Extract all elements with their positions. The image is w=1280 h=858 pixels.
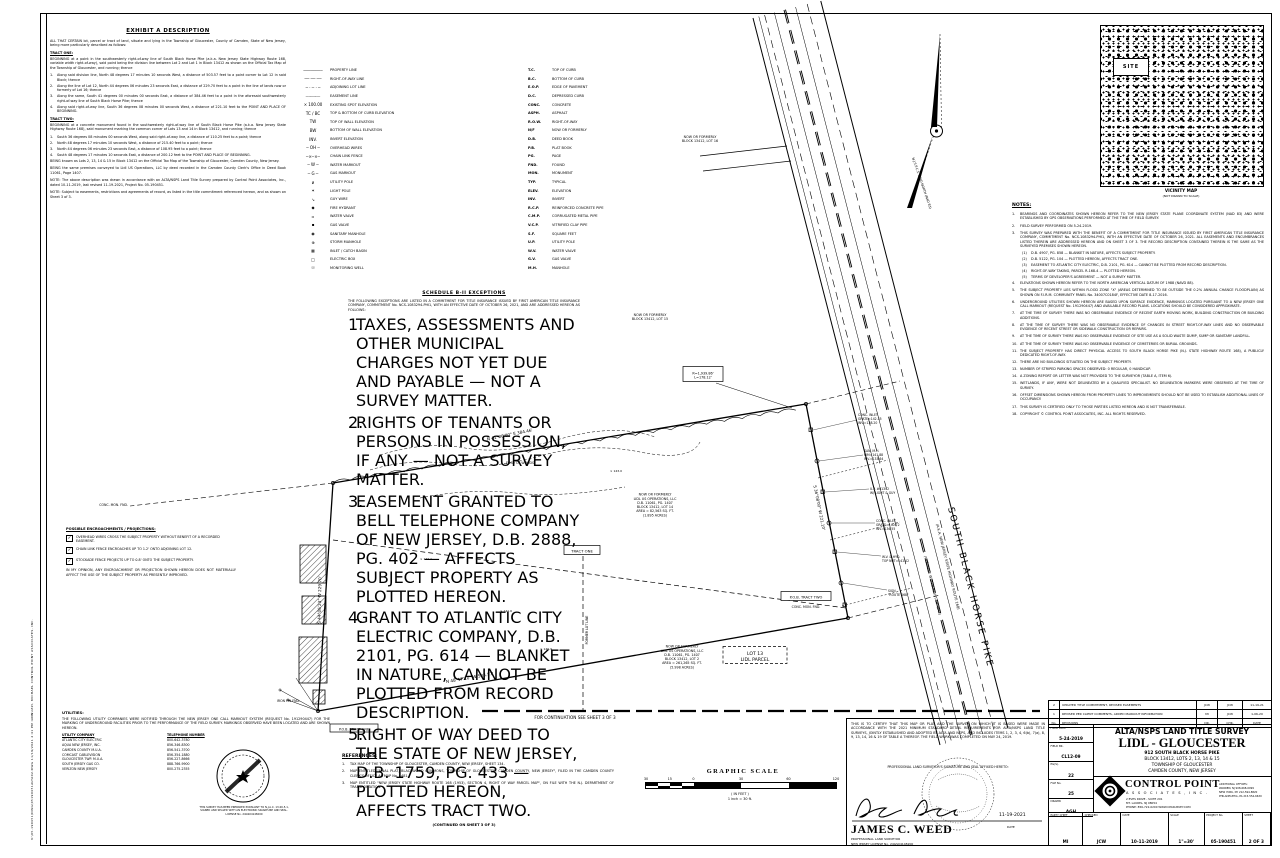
- svg-text:P.O.B. TRACT TWO: P.O.B. TRACT TWO: [790, 596, 823, 600]
- abbreviation: W.V.: [528, 249, 552, 253]
- abbreviation-row: D.C.DEPRESSED CURB: [528, 92, 696, 101]
- abbreviation-row: PG.PAGE: [528, 152, 696, 161]
- abbreviation: P.B.: [528, 146, 552, 150]
- project-address: 912 SOUTH BLACK HORSE PIKE: [1093, 751, 1271, 756]
- abbreviation-row: INV.INVERT: [528, 195, 696, 204]
- abbreviation: TYP.: [528, 180, 552, 184]
- field-label: FIELD DATE: [1051, 726, 1066, 730]
- legend-row: □ELECTRIC BOX: [296, 255, 528, 264]
- exhibit-paragraph: NOTE: Subject to easements, restrictions…: [50, 190, 286, 199]
- abbreviation: B.C.: [528, 77, 552, 81]
- titleblock-bottom-cell: DATE10-11-2019: [1121, 812, 1169, 845]
- signature-date-label: DATE: [1007, 825, 1015, 829]
- abbreviation-row: R.C.P.REINFORCED CONCRETE PIPE: [528, 204, 696, 213]
- legend-label: OVERHEAD WIRES: [330, 146, 362, 150]
- legend-symbol: ─×─×─: [296, 154, 330, 159]
- legend-row: ☉MONITORING WELL: [296, 264, 528, 273]
- exhibit-course: 3.Along the same, South 41 degrees 00 mi…: [50, 94, 286, 103]
- encroachments-title: POSSIBLE ENCROACHMENTS / PROJECTIONS:: [66, 527, 236, 531]
- abbreviation: C.M.P.: [528, 214, 552, 218]
- exhibit-paragraph: BEGINNING at a point in the southwesterl…: [50, 57, 286, 70]
- drawing-label: W.V. & HYD.TOP NUT=141.02: [881, 555, 909, 563]
- abbreviation-meaning: BOTTOM OF CURB: [552, 77, 584, 81]
- note-sub-item: (2)D.B. 5122, PG. 104 — PLOTTED HEREON, …: [1022, 257, 1264, 261]
- abbreviation-meaning: ELEVATION: [552, 189, 571, 193]
- legend-label: GUY WIRE: [330, 197, 348, 201]
- svg-text:N.J.S.P.C.S. GRID NORTH (NAD 8: N.J.S.P.C.S. GRID NORTH (NAD 83): [911, 157, 932, 209]
- firm-subname: A S S O C I A T E S , I N C .: [1126, 791, 1208, 795]
- abbreviation-row: R.O.W.RIGHT-OF-WAY: [528, 118, 696, 127]
- drawing-label: IRON PIN FND.: [277, 699, 300, 703]
- survey-sheet: V:\05-190451\DWG\05190451ALTA02.DWG 11/1…: [0, 0, 1280, 858]
- graphic-scale: GRAPHIC SCALE 301503060120 ( IN FEET ) 1…: [645, 768, 841, 775]
- abbreviation-row: FND.FOUND: [528, 161, 696, 170]
- abbreviation-meaning: PAGE: [552, 154, 561, 158]
- abbreviation: INV.: [528, 197, 552, 201]
- abbreviation-meaning: GAS VALVE: [552, 257, 571, 261]
- scale-inch-note: 1 inch = 30 ft.: [645, 797, 835, 801]
- exhibit-a-body: ALL THAT CERTAIN lot, parcel or tract of…: [50, 39, 286, 199]
- legend-row: ── ── ──RIGHT-OF-WAY LINE: [296, 75, 528, 84]
- drawing-label: NOW OR FORMERLYBLOCK 13412, LOT 15: [632, 313, 668, 321]
- legend-abbreviations: T.C.TOP OF CURBB.C.BOTTOM OF CURBE.O.P.E…: [528, 66, 696, 272]
- note-sub-item: (4)RIGHT-OF-WAY TAKING, PARCEL R-168-4 —…: [1022, 269, 1264, 273]
- legend-label: EASEMENT LINE: [330, 94, 358, 98]
- note-item: 5.THE SUBJECT PROPERTY LIES WITHIN FLOOD…: [1012, 288, 1264, 297]
- legend-label: RIGHT-OF-WAY LINE: [330, 77, 364, 81]
- north-arrow: [907, 34, 943, 208]
- legend-symbol: □: [296, 257, 330, 262]
- abbreviation-row: P.B.PLAT BOOK: [528, 143, 696, 152]
- legend-row: ↘GUY WIRE: [296, 195, 528, 204]
- schedule-b-item: 1.TAXES, ASSESSMENTS AND OTHER MUNICIPAL…: [348, 315, 580, 410]
- svg-text:(1.895 ACRES): (1.895 ACRES): [643, 513, 667, 517]
- abbreviation-meaning: VITRIFIED CLAY PIPE: [552, 223, 587, 227]
- abbreviation-row: V.C.P.VITRIFIED CLAY PIPE: [528, 221, 696, 230]
- notes-title: NOTES:: [1012, 203, 1264, 208]
- reference-item: 1.TAX MAP OF THE TOWNSHIP OF GLOUCESTER,…: [342, 762, 614, 766]
- scale-tick: 0: [692, 777, 694, 781]
- field-value: 22: [1049, 773, 1093, 778]
- abbreviation-row: ASPH.ASPHALT: [528, 109, 696, 118]
- drawing-label: P.O.B. TRACT TWO: [781, 592, 831, 601]
- vicinity-caption-sub: (NOT DRAWN TO SCALE): [1100, 194, 1262, 198]
- exhibit-paragraph: BEGINNING at a concrete monument found i…: [50, 123, 286, 132]
- drawing-label: U.P. #61342W/ LIGHT & GUY: [870, 487, 895, 495]
- scale-tick: 30: [644, 777, 648, 781]
- note-item: 10.AT THE TIME OF SURVEY THERE WAS NO OB…: [1012, 342, 1264, 346]
- revision-row: 1REVISED PER CLIENT COMMENTS, ADDED MARK…: [1049, 710, 1271, 719]
- note-item: 16.OFFSET DIMENSIONS SHOWN HEREON FROM P…: [1012, 393, 1264, 402]
- legend-symbol: ── ── ──: [296, 76, 330, 81]
- field-value: 5-24-2019: [1049, 736, 1093, 741]
- abbreviation-row: CONC.CONCRETE: [528, 100, 696, 109]
- svg-text:"ROUTE 168": "ROUTE 168": [888, 593, 909, 597]
- legend-row: ─ · ─ · ─ADJOINING LOT LINE: [296, 83, 528, 92]
- legend-symbol: ◆: [296, 205, 330, 210]
- survey-type: ALTA/NSPS LAND TITLE SURVEY: [1093, 727, 1271, 736]
- legend-label: SANITARY MANHOLE: [330, 232, 366, 236]
- firm-offices: ADDITIONAL OFFICES:WARREN, NJ 908-668-00…: [1219, 783, 1269, 799]
- firm-office-line: PHILADELPHIA, PA 215-554-6630: [1219, 795, 1269, 799]
- legend-symbol: ø: [296, 180, 330, 185]
- legend-label: TOP OF WALL ELEVATION: [330, 120, 374, 124]
- legend-label: LIGHT POLE: [330, 189, 351, 193]
- abbreviation-row: TYP.TYPICAL: [528, 178, 696, 187]
- abbreviation-meaning: EDGE OF PAVEMENT: [552, 85, 587, 89]
- legend-label: CHAIN LINK FENCE: [330, 154, 363, 158]
- note-item: 17.THIS SURVEY IS CERTIFIED ONLY TO THOS…: [1012, 405, 1264, 409]
- note-item: 4.ELEVATIONS SHOWN HEREON REFER TO THE N…: [1012, 281, 1264, 285]
- reference-item: 2.MAP ENTITLED "FINAL PLAT, BLACKWOOD CO…: [342, 769, 614, 778]
- scale-tick: 120: [833, 777, 839, 781]
- note-sub-item: (5)TERMS OF DEVELOPER'S AGREEMENT — NOT …: [1022, 275, 1264, 279]
- titleblock-field: FILE No.25: [1049, 780, 1093, 798]
- titleblock-bottom-cell: SCALE1"=30': [1169, 812, 1205, 845]
- exhibit-paragraph: ALL THAT CERTAIN lot, parcel or tract of…: [50, 39, 286, 48]
- field-label: DRAWN: [1051, 799, 1061, 803]
- titleblock-field: FIELD BK.CL12-09: [1049, 743, 1093, 761]
- legend-symbol: ▪: [296, 222, 330, 227]
- utilities-paragraph: THE FOLLOWING UTILITY COMPANIES WERE NOT…: [62, 717, 330, 730]
- svg-text:TOP NUT=141.02: TOP NUT=141.02: [881, 559, 909, 563]
- drawing-label: NOW OR FORMERLYLIDL US OPERATIONS, LLCD.…: [661, 645, 705, 670]
- legend-symbol: ✶: [296, 188, 330, 193]
- legend-symbol: ▫: [296, 214, 330, 219]
- abbreviation: R.O.W.: [528, 120, 552, 124]
- utilities-title: UTILITIES:: [62, 710, 330, 715]
- abbreviation-meaning: CONCRETE: [552, 103, 571, 107]
- reference-item: 3.MAP ENTITLED "NEW JERSEY STATE HIGHWAY…: [342, 781, 614, 790]
- field-label: PG(S).: [1051, 762, 1059, 766]
- legend-row: INV.INVERT ELEVATION: [296, 135, 528, 144]
- exhibit-a-title: EXHIBIT A DESCRIPTION: [50, 28, 286, 34]
- legend-symbol: ☉: [296, 265, 330, 270]
- svg-text:LOT 13: LOT 13: [747, 651, 763, 657]
- note-item: 8.AT THE TIME OF SURVEY THERE WAS NO OBS…: [1012, 323, 1264, 332]
- references-section: REFERENCES: 1.TAX MAP OF THE TOWNSHIP OF…: [342, 754, 614, 792]
- legend-symbol: ─ W ─: [296, 162, 330, 167]
- legend-label: GAS VALVE: [330, 223, 349, 227]
- vicinity-caption: VICINITY MAP: [1100, 188, 1262, 193]
- drawing-label: NOW OR FORMERLYLIDL US OPERATIONS, LLCD.…: [634, 493, 678, 518]
- legend-symbol: ─ OH ─: [296, 145, 330, 150]
- abbreviation: V.C.P.: [528, 223, 552, 227]
- drawing-label: CONC. INLETGRATE=140.72INV.=136.55: [876, 519, 900, 531]
- firm-name: CONTROL POINT: [1125, 779, 1220, 790]
- encroachments-note: IN MY OPINION, ANY ENCROACHMENT OR PROJE…: [66, 568, 236, 577]
- schedule-b-item: 4.GRANT TO ATLANTIC CITY ELECTRIC COMPAN…: [348, 608, 580, 722]
- abbreviation: N/F: [528, 128, 552, 132]
- drawing-label: SAN. M.H.RIM=141.88INV.=133.64: [864, 449, 883, 461]
- abbreviation: PG.: [528, 154, 552, 158]
- abbreviation: MON.: [528, 171, 552, 175]
- svg-text:L=178.12': L=178.12': [694, 376, 712, 380]
- svg-text:S 44°06'23" W 229.70': S 44°06'23" W 229.70': [317, 576, 323, 624]
- drawing-label: R=1,939.86'L=178.12': [683, 367, 723, 382]
- legend-row: ◉SANITARY MANHOLE: [296, 229, 528, 238]
- schedule-b-footer: (CONTINUED ON SHEET 3 OF 3): [348, 823, 580, 827]
- drawing-label: S 44°06'23" W 229.70': [317, 576, 323, 624]
- references-title: REFERENCES:: [342, 754, 614, 759]
- legend-label: FIRE HYDRANT: [330, 206, 356, 210]
- field-label: PROJECT No.: [1206, 813, 1223, 817]
- legend-symbol: ▦: [296, 248, 330, 253]
- abbreviation: FND.: [528, 163, 552, 167]
- svg-text:(5.998 ACRES): (5.998 ACRES): [670, 665, 694, 669]
- exhibit-course: 2.Along the line of Lot 12, North 44 deg…: [50, 84, 286, 93]
- legend-label: WATER MARKOUT: [330, 163, 361, 167]
- surveyor-title: PROFESSIONAL LAND SURVEYOR: [851, 837, 900, 841]
- field-value: JCW: [1083, 839, 1120, 844]
- schedule-b-item: 3.EASEMENT GRANTED TO BELL TELEPHONE COM…: [348, 492, 580, 606]
- legend-row: ✶LIGHT POLE: [296, 186, 528, 195]
- utilities-section: UTILITIES: THE FOLLOWING UTILITY COMPANI…: [62, 710, 330, 772]
- schedule-b-section: SCHEDULE B-II EXCEPTIONS THE FOLLOWING E…: [348, 291, 580, 827]
- revision-row: 2UPDATED TITLE COMMITMENT, REVISED EASEM…: [1049, 701, 1271, 710]
- field-value: 05-190451: [1205, 839, 1242, 844]
- note-item: 6.UNDERGROUND UTILITIES SHOWN HEREON ARE…: [1012, 300, 1264, 309]
- legend-row: ─ W ─WATER MARKOUT: [296, 161, 528, 170]
- seal-caption: THIS SURVEY HAS BEEN PREPARED PURSUANT T…: [196, 806, 292, 816]
- abbreviation: E.O.P.: [528, 85, 552, 89]
- abbreviation-row: M.H.MANHOLE: [528, 264, 696, 273]
- abbreviation: ELEV.: [528, 189, 552, 193]
- legend-label: WATER VALVE: [330, 214, 354, 218]
- svg-text:INV.=138.20: INV.=138.20: [858, 421, 877, 425]
- field-value: 25: [1049, 791, 1093, 796]
- field-value: MI: [1049, 839, 1082, 844]
- checkbox-icon: ✓: [66, 535, 73, 542]
- legend-label: BOTTOM OF WALL ELEVATION: [330, 128, 382, 132]
- field-label: PARTY CHIEF: [1051, 813, 1068, 817]
- vicinity-map: SITE: [1100, 25, 1264, 187]
- exhibit-a-section: EXHIBIT A DESCRIPTION ALL THAT CERTAIN l…: [50, 28, 286, 202]
- abbreviation-row: U.P.UTILITY POLE: [528, 238, 696, 247]
- abbreviation-row: S.F.SQUARE FEET: [528, 229, 696, 238]
- signature-label: PROFESSIONAL LAND SURVEYOR'S SIGNATURE A…: [851, 765, 1045, 769]
- note-item: 18.COPYRIGHT © CONTROL POINT ASSOCIATES,…: [1012, 412, 1264, 416]
- scale-tick: 30: [739, 777, 743, 781]
- note-item: 9.AT THE TIME OF SURVEY THERE WAS NO OBS…: [1012, 334, 1264, 338]
- abbreviation-meaning: CORRUGATED METAL PIPE: [552, 214, 598, 218]
- abbreviation-meaning: FOUND: [552, 163, 565, 167]
- abbreviation: D.C.: [528, 94, 552, 98]
- legend-label: TOP & BOTTOM OF CURB ELEVATION: [330, 111, 394, 115]
- legend-row: ▫WATER VALVE: [296, 212, 528, 221]
- abbreviation-meaning: ASPHALT: [552, 111, 567, 115]
- svg-text:IRON PIN FND.: IRON PIN FND.: [277, 699, 300, 703]
- note-item: 11.THE SUBJECT PROPERTY HAS DIRECT PHYSI…: [1012, 349, 1264, 358]
- abbreviation-meaning: NOW OR FORMERLY: [552, 128, 587, 132]
- legend-symbol: ─ · ─ · ─: [296, 85, 330, 90]
- abbreviation-meaning: SQUARE FEET: [552, 232, 576, 236]
- exhibit-paragraph: BEING the same premises conveyed to Lidl…: [50, 166, 286, 175]
- abbreviation-meaning: TYPICAL: [552, 180, 566, 184]
- legend-symbol: TC / BC: [296, 111, 330, 116]
- legend-row: BWBOTTOM OF WALL ELEVATION: [296, 126, 528, 135]
- signature-block: THIS IS TO CERTIFY THAT THIS MAP OR PLAT…: [846, 718, 1049, 846]
- legend-row: ─ OH ─OVERHEAD WIRES: [296, 143, 528, 152]
- scale-in-feet: ( IN FEET ): [645, 792, 835, 796]
- utility-company: VERIZON NEW JERSEY: [62, 767, 167, 772]
- legend-row: ─×─×─CHAIN LINK FENCE: [296, 152, 528, 161]
- firm-address3: PHONE: 856-722-0200 WWW.CPASURVEY.COM: [1126, 805, 1191, 809]
- exhibit-paragraph: BEING known as Lots 2, 13, 14 & 15 in Bl…: [50, 159, 286, 163]
- checkbox-icon: ✓: [66, 558, 73, 565]
- note-sub-item: (3)EASEMENT TO ATLANTIC CITY ELECTRIC, D…: [1022, 263, 1264, 267]
- field-value: 2 OF 3: [1243, 839, 1270, 844]
- abbreviation-meaning: TOP OF CURB: [552, 68, 576, 72]
- project-block-lots: BLOCK 13412, LOTS 2, 13, 14 & 15: [1093, 757, 1271, 762]
- field-value: 1"=30': [1169, 839, 1204, 844]
- titleblock-field: FIELD DATE5-24-2019: [1049, 725, 1093, 743]
- adjacent-buildings: [299, 545, 327, 704]
- abbreviation-meaning: UTILITY POLE: [552, 240, 575, 244]
- drawing-label: N.J.S.P.C.S. GRID NORTH (NAD 83): [911, 157, 932, 209]
- abbreviation: S.F.: [528, 232, 552, 236]
- legend-label: UTILITY POLE: [330, 180, 353, 184]
- legend-symbol: ⊕: [296, 240, 330, 245]
- legend-label: PROPERTY LINE: [330, 68, 357, 72]
- road-south-black-horse-pike: [700, 1, 1008, 745]
- svg-text:BLOCK 13412, LOT 15: BLOCK 13412, LOT 15: [632, 317, 668, 321]
- field-label: FILE No.: [1051, 781, 1062, 785]
- abbreviation-row: MON.MONUMENT: [528, 169, 696, 178]
- note-sub-item: (1)D.B. 4907, PG. 858 — BLANKET IN NATUR…: [1022, 251, 1264, 255]
- field-label: FIELD BK.: [1051, 744, 1064, 748]
- vicinity-site-label: SITE: [1113, 58, 1149, 76]
- legend-symbols: ────────PROPERTY LINE── ── ──RIGHT-OF-WA…: [296, 66, 528, 272]
- abbreviation-row: ELEV.ELEVATION: [528, 186, 696, 195]
- abbreviation-meaning: MANHOLE: [552, 266, 570, 270]
- drawing-label: CONC. MON. FND.: [99, 503, 128, 507]
- legend-row: ◆FIRE HYDRANT: [296, 204, 528, 213]
- titleblock-field: PG(S).22: [1049, 762, 1093, 780]
- field-label: CHECKED: [1085, 813, 1098, 817]
- legend-symbol: TW: [296, 119, 330, 124]
- exhibit-course: 2.North 48 degrees 17 minutes 10 seconds…: [50, 141, 286, 145]
- abbreviation-row: G.V.GAS VALVE: [528, 255, 696, 264]
- abbreviation-meaning: DEPRESSED CURB: [552, 94, 584, 98]
- scale-bar: 301503060120: [645, 782, 837, 789]
- svg-text:LIDL PARCEL: LIDL PARCEL: [741, 657, 770, 663]
- legend-symbol: ────────: [296, 68, 330, 73]
- abbreviation-meaning: INVERT: [552, 197, 565, 201]
- exhibit-paragraph: NOTE: The above description was drawn in…: [50, 178, 286, 187]
- abbreviation-row: N/FNOW OR FORMERLY: [528, 126, 696, 135]
- abbreviation-row: C.M.P.CORRUGATED METAL PIPE: [528, 212, 696, 221]
- note-item: 12.THERE ARE NO BUILDINGS SITUATED ON TH…: [1012, 360, 1264, 364]
- abbreviation: T.C.: [528, 68, 552, 72]
- legend-label: STORM MANHOLE: [330, 240, 361, 244]
- abbreviation: M.H.: [528, 266, 552, 270]
- titleblock-bottom-cell: PROJECT No.05-190451: [1205, 812, 1243, 845]
- legend-row: ⊕STORM MANHOLE: [296, 238, 528, 247]
- surveyor-license: NEW JERSEY LICENSE No. 24GS04148200: [851, 842, 913, 846]
- abbreviation: CONC.: [528, 103, 552, 107]
- field-value: CL12-09: [1049, 754, 1093, 759]
- exhibit-tract-heading: TRACT ONE:: [50, 51, 286, 55]
- abbreviation-row: B.C.BOTTOM OF CURB: [528, 75, 696, 84]
- note-item: 2.FIELD SURVEY PERFORMED ON 5-24-2019.: [1012, 224, 1264, 228]
- abbreviation-row: T.C.TOP OF CURB: [528, 66, 696, 75]
- certification-text: THIS IS TO CERTIFY THAT THIS MAP OR PLAT…: [851, 722, 1045, 740]
- drawing-label: SIGN"ROUTE 168": [888, 589, 909, 597]
- legend-label: ELECTRIC BOX: [330, 257, 355, 261]
- abbreviation-meaning: REINFORCED CONCRETE PIPE: [552, 206, 604, 210]
- abbreviation-meaning: DEED BOOK: [552, 137, 573, 141]
- exhibit-course: 4.Along said right-of-way line, South 36…: [50, 105, 286, 114]
- field-label: SHEET: [1244, 813, 1253, 817]
- exhibit-course: 4.South 48 degrees 17 minutes 10 seconds…: [50, 153, 286, 157]
- schedule-b-title: SCHEDULE B-II EXCEPTIONS: [348, 291, 580, 296]
- drawing-label: FORMER LOT LINE: [585, 616, 589, 645]
- encroachments-section: POSSIBLE ENCROACHMENTS / PROJECTIONS: ✓O…: [66, 527, 236, 577]
- note-item: 1.BEARINGS AND COORDINATES SHOWN HEREON …: [1012, 212, 1264, 221]
- abbreviation: D.B.: [528, 137, 552, 141]
- abbreviation-row: E.O.P.EDGE OF PAVEMENT: [528, 83, 696, 92]
- abbreviation-meaning: MONUMENT: [552, 171, 573, 175]
- legend-symbol: INV.: [296, 137, 330, 142]
- svg-text:W/ LIGHT & GUY: W/ LIGHT & GUY: [870, 491, 895, 495]
- titleblock-bottom-cell: SHEET2 OF 3: [1243, 812, 1271, 845]
- legend-symbol: BW: [296, 128, 330, 133]
- exhibit-course: 1.Along said division line, North 48 deg…: [50, 73, 286, 82]
- legend-label: EXISTING SPOT ELEVATION: [330, 103, 377, 107]
- drawing-label: CONC. MON. FND.: [792, 605, 821, 609]
- project-title: LIDL - GLOUCESTER: [1093, 736, 1271, 751]
- titleblock-bottom-cell: CHECKEDJCW: [1083, 812, 1121, 845]
- drawing-label: LOT 13LIDL PARCEL: [723, 647, 787, 664]
- legend-row: øUTILITY POLE: [296, 178, 528, 187]
- drawing-label: × 143.0: [610, 469, 622, 473]
- project-county: CAMDEN COUNTY, NEW JERSEY: [1093, 769, 1271, 774]
- legend-row: ┄┄┄┄┄┄EASEMENT LINE: [296, 92, 528, 101]
- note-item: 13.NUMBER OF STRIPED PARKING SPACES OBSE…: [1012, 367, 1264, 371]
- legend-row: ────────PROPERTY LINE: [296, 66, 528, 75]
- schedule-b-item: 2.RIGHTS OF TENANTS OR PERSONS IN POSSES…: [348, 413, 580, 489]
- svg-text:INV.=136.55: INV.=136.55: [876, 527, 895, 531]
- legend-symbol: ┄┄┄┄┄┄: [296, 94, 330, 99]
- abbreviation-meaning: PLAT BOOK: [552, 146, 572, 150]
- exhibit-course: 3.North 44 degrees 06 minutes 23 seconds…: [50, 147, 286, 151]
- legend-label: INLET / CATCH BASIN: [330, 249, 367, 253]
- abbreviation: ASPH.: [528, 111, 552, 115]
- legend-label: GAS MARKOUT: [330, 171, 356, 175]
- legend-row: × 100.00EXISTING SPOT ELEVATION: [296, 100, 528, 109]
- note-item: 14.A ZONING REPORT OR LETTER WAS NOT PRO…: [1012, 374, 1264, 378]
- field-label: DATE: [1123, 813, 1130, 817]
- encroachment-item: ✓CHAIN LINK FENCE ENCROACHES UP TO 1.2' …: [66, 547, 236, 554]
- field-label: SCALE: [1170, 813, 1179, 817]
- abbreviation-row: D.B.DEED BOOK: [528, 135, 696, 144]
- encroachment-item: ✓STOCKADE FENCE PROJECTS UP TO 0.8' ONTO…: [66, 558, 236, 565]
- note-item: 7.AT THE TIME OF SURVEY THERE WAS NO OBS…: [1012, 311, 1264, 320]
- abbreviation: U.P.: [528, 240, 552, 244]
- exhibit-course: 1.South 36 degrees 08 minutes 00 seconds…: [50, 135, 286, 139]
- legend-row: ─ G ─GAS MARKOUT: [296, 169, 528, 178]
- svg-text:× 143.0: × 143.0: [610, 469, 622, 473]
- seal-caption-line: LICENSE No. 24GS04148200: [196, 813, 292, 816]
- title-block: FIELD DATE5-24-2019FIELD BK.CL12-09PG(S)…: [1048, 724, 1271, 845]
- svg-text:INV.=133.64: INV.=133.64: [864, 457, 883, 461]
- abbreviation-meaning: RIGHT-OF-WAY: [552, 120, 577, 124]
- svg-text:CONC. MON. FND.: CONC. MON. FND.: [99, 503, 128, 507]
- legend-row: ▪GAS VALVE: [296, 221, 528, 230]
- legend-symbol: ↘: [296, 197, 330, 202]
- legend-symbol: ─ G ─: [296, 171, 330, 176]
